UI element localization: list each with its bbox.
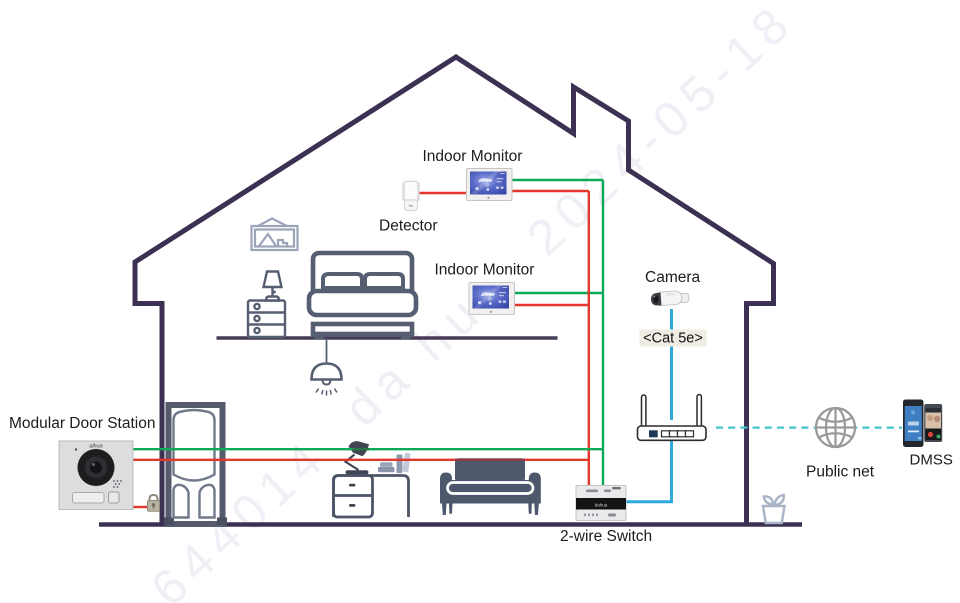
svg-text:DMSS: DMSS: [910, 452, 953, 469]
svg-text:Detector: Detector: [379, 218, 438, 235]
svg-text:2-wire Switch: 2-wire Switch: [560, 528, 652, 545]
svg-text:Modular Door Station: Modular Door Station: [9, 415, 155, 432]
svg-text:<Cat 5e>: <Cat 5e>: [643, 331, 703, 347]
svg-text:dahua: dahua: [595, 503, 608, 508]
svg-text:Public net: Public net: [806, 464, 875, 481]
svg-text:alhua: alhua: [89, 444, 102, 450]
svg-text:Indoor Monitor: Indoor Monitor: [435, 262, 535, 279]
svg-text:Camera: Camera: [645, 269, 701, 286]
svg-text:Indoor Monitor: Indoor Monitor: [423, 148, 523, 165]
